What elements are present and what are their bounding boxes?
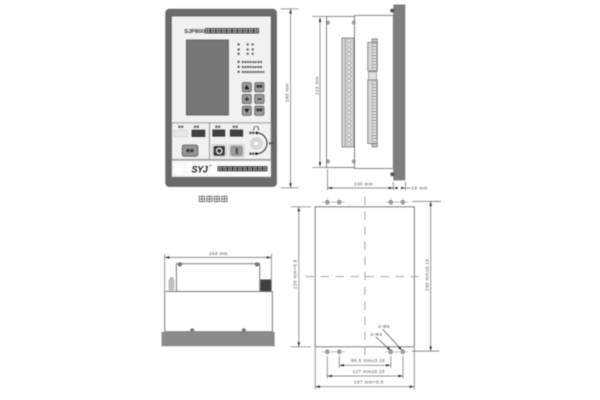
svg-text:100 mm: 100 mm [354,181,373,186]
svg-text:260 mm: 260 mm [285,83,290,102]
svg-text:4-Φ6: 4-Φ6 [378,324,390,329]
svg-text:127 mm±0.15: 127 mm±0.15 [353,369,386,374]
svg-text:19 mm: 19 mm [412,186,428,191]
svg-text:167 mm+0.5: 167 mm+0.5 [354,380,384,385]
svg-text:164 mm: 164 mm [209,251,228,256]
svg-text:240 mm±0.15: 240 mm±0.15 [425,258,430,291]
svg-text:4-Φ4: 4-Φ4 [371,332,383,337]
svg-text:SYJ: SYJ [192,165,209,175]
svg-text:225 mm+0.5: 225 mm+0.5 [293,259,298,289]
svg-text:223 mm: 223 mm [314,76,319,95]
svg-text:96.5 mm±0.15: 96.5 mm±0.15 [351,358,385,363]
svg-text:SJP800: SJP800 [184,29,205,35]
